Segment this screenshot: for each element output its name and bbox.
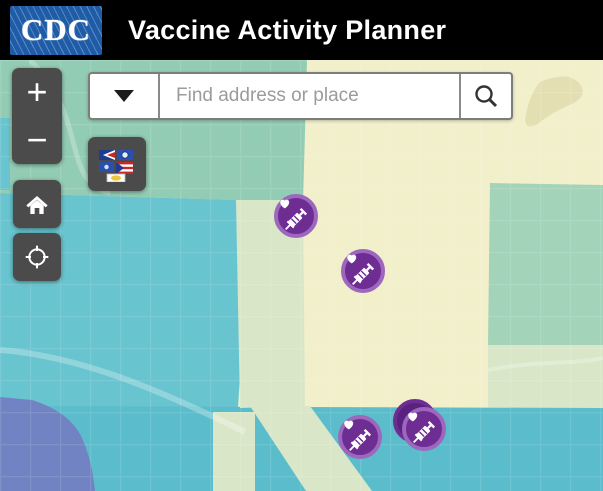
app-header: CDC Vaccine Activity Planner xyxy=(0,0,603,60)
search-button[interactable] xyxy=(459,74,511,118)
page-title: Vaccine Activity Planner xyxy=(128,15,446,46)
search-source-dropdown[interactable] xyxy=(90,74,160,118)
search-input[interactable] xyxy=(160,74,459,118)
chevron-down-icon xyxy=(114,90,134,102)
zoom-out-button[interactable]: − xyxy=(12,116,62,164)
zoom-in-button[interactable]: + xyxy=(12,68,62,116)
crosshair-icon xyxy=(21,241,53,273)
magnifier-icon xyxy=(472,82,500,110)
territory-flags-icon xyxy=(98,146,136,182)
zoom-control: + − xyxy=(12,68,62,164)
search-input-wrap xyxy=(160,74,459,118)
map-canvas[interactable]: + − xyxy=(0,60,603,491)
cdc-logo[interactable]: CDC xyxy=(10,6,102,55)
home-icon xyxy=(21,188,53,220)
vaccine-location-marker[interactable] xyxy=(400,405,448,453)
search-bar xyxy=(88,72,513,120)
heart-syringe-icon xyxy=(336,413,384,461)
heart-syringe-icon xyxy=(339,247,387,295)
heart-syringe-icon xyxy=(272,192,320,240)
vaccine-location-marker[interactable] xyxy=(336,413,384,461)
heart-syringe-icon xyxy=(400,405,448,453)
locate-button[interactable] xyxy=(13,233,61,281)
marker-layer xyxy=(0,60,603,491)
cdc-logo-text: CDC xyxy=(21,12,91,48)
vaccine-location-marker[interactable] xyxy=(272,192,320,240)
home-button[interactable] xyxy=(13,180,61,228)
territories-widget-button[interactable] xyxy=(88,137,146,191)
vaccine-location-marker[interactable] xyxy=(339,247,387,295)
